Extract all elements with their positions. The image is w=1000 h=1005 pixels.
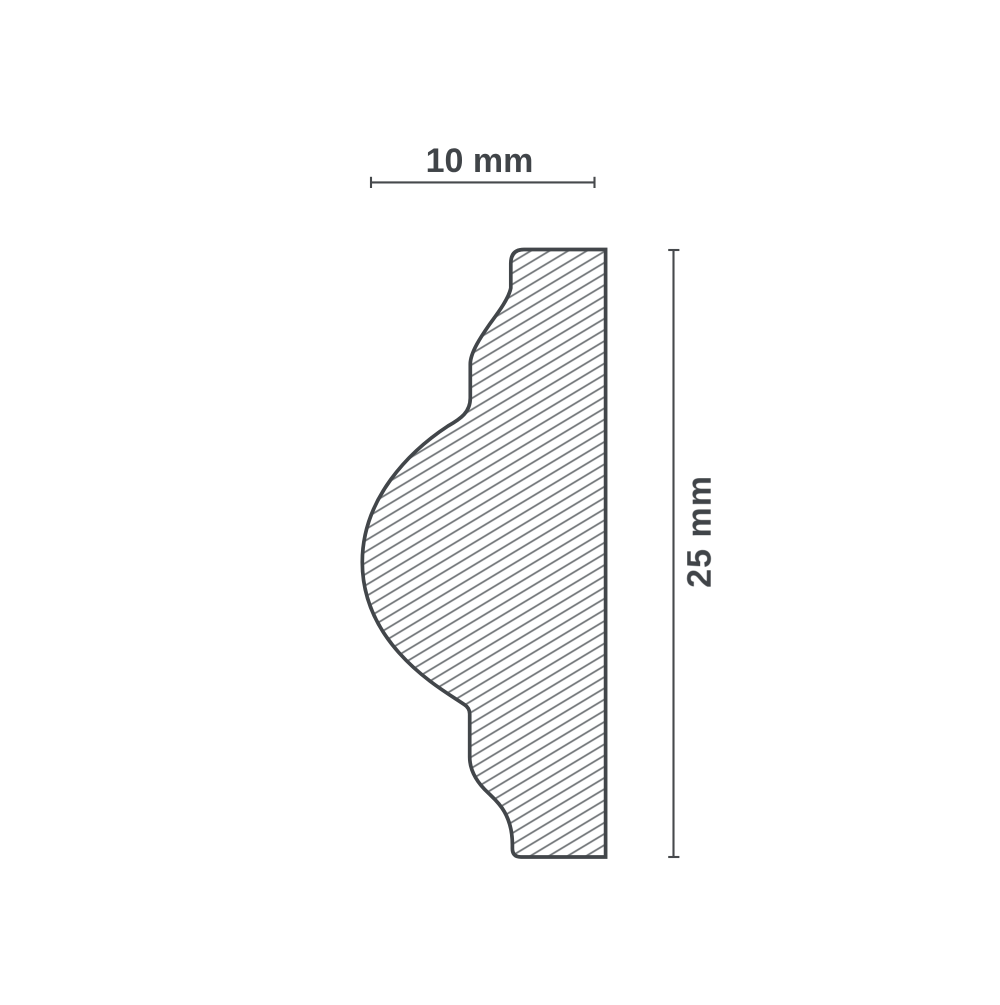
svg-text:10 mm: 10 mm: [426, 142, 534, 180]
svg-text:25 mm: 25 mm: [681, 475, 719, 588]
